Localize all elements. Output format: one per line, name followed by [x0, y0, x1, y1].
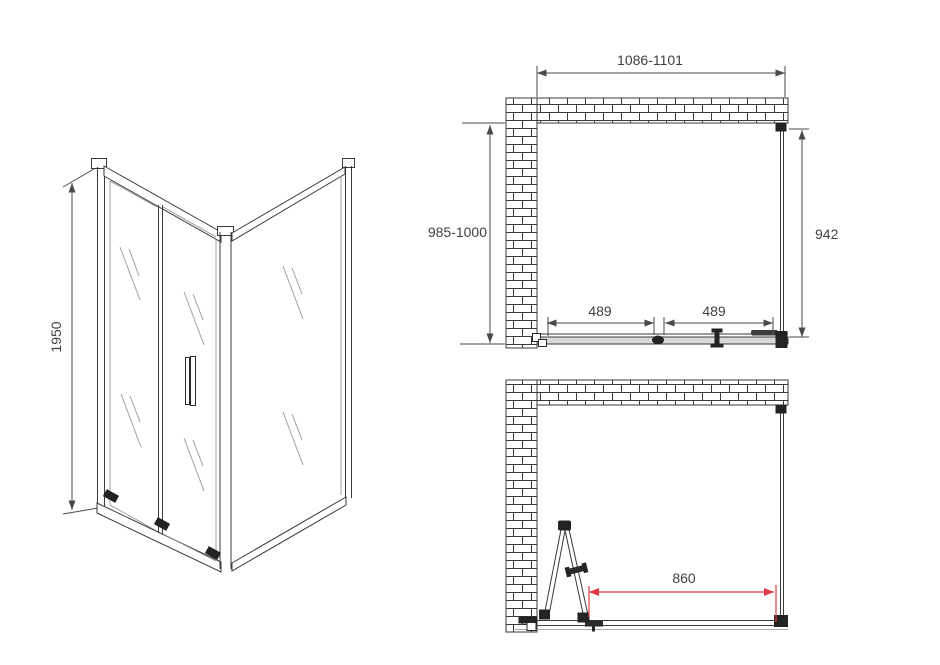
wall-bracket-top [776, 405, 787, 414]
door-panel-left-label: 489 [588, 303, 612, 319]
door-handle [186, 357, 196, 406]
width-range-label: 1086-1101 [617, 52, 683, 68]
brick-wall-left [506, 98, 537, 348]
depth-range-label: 985-1000 [428, 224, 487, 240]
wall-bracket-top [776, 123, 787, 132]
brick-wall-top [506, 98, 788, 123]
shower-enclosure-drawing: 1950 [0, 0, 940, 665]
side-panel-label: 942 [815, 226, 839, 242]
door-pivot-left [539, 610, 550, 620]
door-hinge-top [558, 521, 571, 531]
technical-drawing-page: 1950 [0, 0, 940, 665]
center-guide [652, 336, 664, 345]
handle-plan [751, 330, 778, 336]
height-dim-label: 1950 [48, 321, 64, 352]
door-panel-right-label: 489 [702, 303, 726, 319]
page-background [0, 0, 940, 665]
roller-bolt [712, 329, 723, 333]
door-opening-label: 860 [672, 570, 696, 586]
door-pivot-right [578, 613, 590, 623]
brick-wall-top [506, 380, 788, 405]
corner-cap-top-right [343, 159, 355, 168]
corner-bracket [776, 331, 788, 348]
brick-wall-left [506, 380, 537, 632]
